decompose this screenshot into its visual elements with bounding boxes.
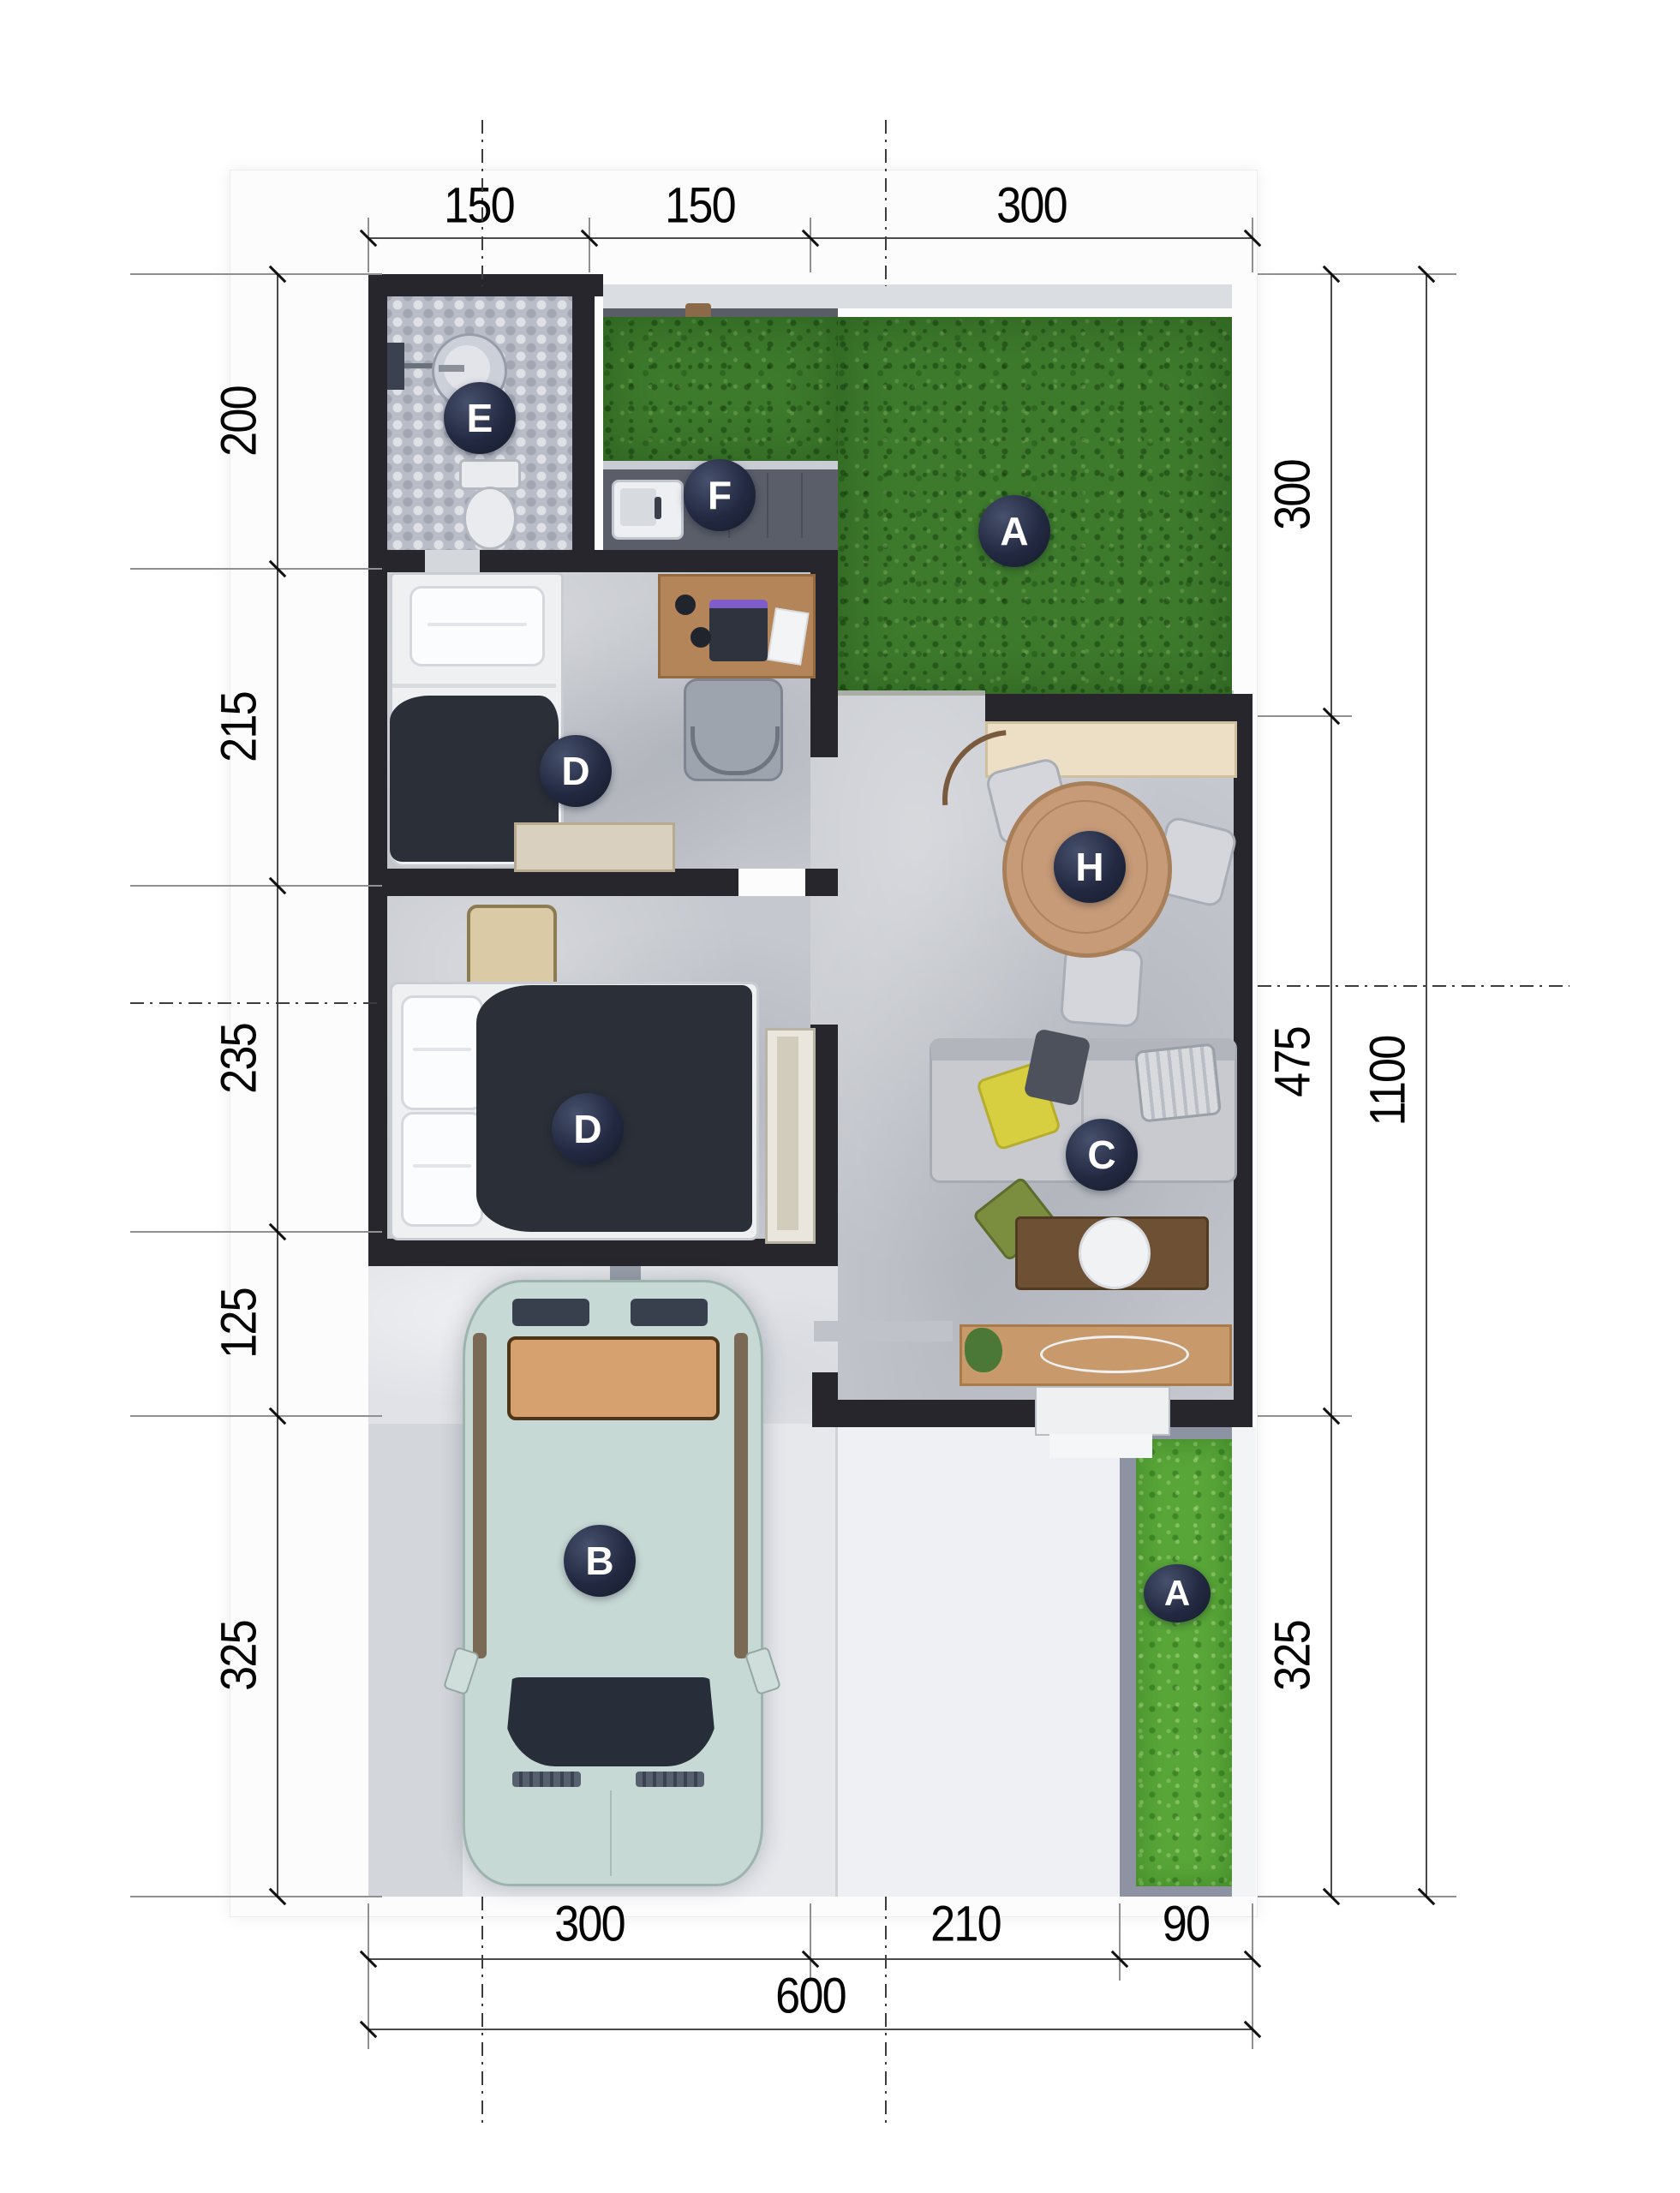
ext-bottom-3 bbox=[1119, 1903, 1121, 1981]
wardrobe-stripe bbox=[777, 1037, 798, 1230]
entry-door bbox=[1035, 1386, 1170, 1436]
ext-top-1 bbox=[368, 218, 369, 272]
dim-left-235: 235 bbox=[211, 1024, 268, 1094]
dim-bottom-210: 210 bbox=[930, 1896, 1001, 1953]
ext-top-4 bbox=[1252, 218, 1253, 272]
wall-bedroom-divider-b bbox=[805, 869, 838, 896]
wall-garden-bottom bbox=[985, 694, 1253, 721]
console-tray bbox=[1040, 1336, 1189, 1373]
ext-left-3 bbox=[130, 885, 382, 887]
marker-bedroom-lower: D bbox=[552, 1093, 624, 1165]
bed-lower-pillow-2 bbox=[401, 1112, 483, 1227]
ext-left-5 bbox=[130, 1415, 382, 1417]
grass-floor-edge bbox=[838, 690, 985, 696]
wall-bedroom-divider-a bbox=[387, 869, 738, 896]
dining-chair-south bbox=[1060, 944, 1144, 1028]
axis-vertical-1-bottom bbox=[481, 1897, 483, 2123]
front-walkway bbox=[838, 1424, 1120, 1897]
dim-top-300: 300 bbox=[996, 177, 1067, 235]
bed-upper-pillow bbox=[410, 586, 545, 666]
dim-bottom-90: 90 bbox=[1163, 1896, 1209, 1953]
car-window-right bbox=[734, 1333, 748, 1658]
dim-bottom-outer-line bbox=[368, 2029, 1253, 2030]
side-garden-grass bbox=[1136, 1439, 1232, 1886]
car-cowl-grill-left bbox=[512, 1772, 581, 1787]
ext-top-3 bbox=[810, 218, 811, 272]
dim-right-inner-line bbox=[1330, 274, 1332, 1897]
marker-dining: H bbox=[1054, 831, 1126, 903]
dim-right-outer-line bbox=[1426, 274, 1427, 1897]
car-sunroof bbox=[507, 1336, 720, 1420]
toilet-tank bbox=[459, 459, 521, 490]
dim-left-200: 200 bbox=[211, 386, 268, 457]
walkway-edge-line bbox=[835, 1424, 838, 1897]
console-plant bbox=[965, 1328, 1002, 1372]
wall-left bbox=[368, 274, 387, 1266]
car-roof-vent-left bbox=[512, 1299, 589, 1326]
side-garden-white-edge bbox=[1232, 1427, 1256, 1897]
dim-bottom-600: 600 bbox=[775, 1968, 846, 2025]
wall-bath-bottom-b bbox=[480, 550, 595, 572]
bathroom-door-gap bbox=[425, 550, 480, 572]
bedroom-upper-bench bbox=[514, 822, 675, 872]
car-cowl-grill-right bbox=[636, 1772, 704, 1787]
dim-right-325: 325 bbox=[1264, 1621, 1322, 1691]
ext-left-1 bbox=[130, 273, 382, 275]
axis-horizontal-left bbox=[130, 1002, 379, 1004]
laptop bbox=[709, 600, 768, 661]
porch-step bbox=[814, 1321, 953, 1341]
bed-lower-pillow-1 bbox=[401, 995, 483, 1110]
dumbbell-2 bbox=[691, 627, 711, 648]
counter-seam-2 bbox=[767, 473, 768, 538]
towel-rack bbox=[387, 343, 404, 390]
nightstand bbox=[467, 905, 557, 992]
axis-vertical-2-top bbox=[885, 120, 887, 286]
dim-right-475: 475 bbox=[1264, 1027, 1322, 1097]
dim-right-300: 300 bbox=[1264, 460, 1322, 530]
ext-top-2 bbox=[589, 218, 590, 272]
marker-carport: B bbox=[564, 1525, 636, 1597]
dim-left-line bbox=[277, 274, 278, 1897]
ext-right-2 bbox=[1258, 715, 1352, 717]
wall-bath-kitchen-divider bbox=[572, 296, 595, 550]
dim-left-325: 325 bbox=[211, 1621, 268, 1691]
ext-left-2 bbox=[130, 568, 382, 570]
wall-living-bottom-left bbox=[812, 1400, 1035, 1427]
dim-top-150a: 150 bbox=[444, 177, 514, 235]
wall-kitchen-bottom bbox=[595, 550, 838, 572]
garden-top-grass-strip bbox=[603, 317, 838, 461]
axis-vertical-2-bottom bbox=[885, 1897, 887, 2123]
counter-seam-3 bbox=[801, 473, 803, 538]
bath-sink-spout bbox=[439, 365, 464, 372]
entry-door-mat bbox=[1049, 1434, 1152, 1458]
wall-living-bottom-right bbox=[1167, 1400, 1253, 1427]
bed-upper-foldline bbox=[392, 684, 556, 688]
marker-bathroom: E bbox=[444, 382, 516, 454]
car-windshield bbox=[504, 1677, 718, 1766]
wall-top bbox=[368, 274, 603, 296]
dumbbell-1 bbox=[675, 595, 696, 615]
ext-right-3 bbox=[1258, 1415, 1352, 1417]
dim-left-215: 215 bbox=[211, 692, 268, 762]
axis-horizontal-right bbox=[1258, 985, 1569, 987]
kitchen-faucet bbox=[655, 497, 661, 519]
car-hood-seam bbox=[610, 1790, 612, 1876]
sofa-pillow-striped bbox=[1134, 1043, 1222, 1122]
dim-top-150b: 150 bbox=[665, 177, 735, 235]
marker-living: C bbox=[1066, 1119, 1138, 1191]
ext-left-4 bbox=[130, 1231, 382, 1233]
marker-garden-side: A bbox=[1144, 1564, 1211, 1622]
marker-bedroom-upper: D bbox=[540, 735, 612, 807]
marker-garden-top: A bbox=[978, 495, 1050, 567]
dim-left-125: 125 bbox=[211, 1288, 268, 1359]
toilet-bowl bbox=[463, 487, 517, 550]
coffee-table-plate bbox=[1079, 1217, 1151, 1289]
marker-kitchen: F bbox=[684, 459, 756, 531]
floor-plan-page: { "title": "house-floor-plan", "dims": {… bbox=[0, 0, 1680, 2193]
car-window-left bbox=[473, 1333, 487, 1658]
kitchen-sink-basin bbox=[620, 488, 656, 526]
garden-top-rail bbox=[603, 308, 838, 317]
wall-bath-bottom-a bbox=[387, 550, 425, 572]
wall-living-bottom-corner bbox=[812, 1372, 838, 1427]
ext-left-6 bbox=[130, 1896, 382, 1897]
dim-bottom-300: 300 bbox=[554, 1896, 625, 1953]
dim-right-1100: 1100 bbox=[1360, 1036, 1417, 1126]
axis-vertical-1-top bbox=[481, 120, 483, 286]
car-roof-vent-right bbox=[631, 1299, 708, 1326]
